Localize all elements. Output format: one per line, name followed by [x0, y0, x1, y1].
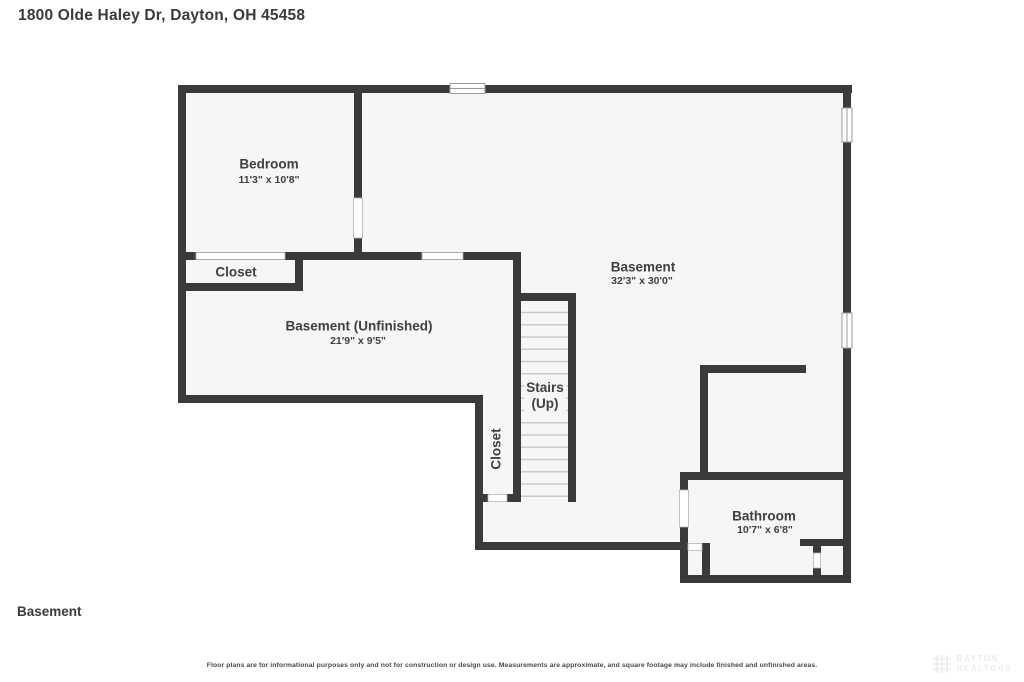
- door-stair-closet: [488, 495, 507, 502]
- stairs-label-line2: (Up): [526, 396, 564, 412]
- wall-unfinished-bottom: [178, 395, 483, 403]
- door-bedroom: [354, 198, 363, 238]
- mls-watermark: DAYTON REALTORS: [931, 653, 1012, 675]
- watermark-text: DAYTON REALTORS: [957, 654, 1012, 674]
- basement-unfinished-dimensions: 21'9" x 9'5": [330, 335, 386, 347]
- realtor-logo-icon: [931, 653, 953, 675]
- wall-bedroom-closet-bottom: [178, 283, 303, 291]
- stair-closet-label: Closet: [489, 428, 504, 469]
- wall-nook-left: [700, 365, 708, 480]
- bathroom-dimensions: 10'7" x 6'8": [737, 524, 793, 536]
- wall-outer-top: [178, 85, 852, 93]
- floor-plan-page: 1800 Olde Haley Dr, Dayton, OH 45458: [0, 0, 1024, 682]
- bathroom-label: Bathroom: [732, 509, 796, 524]
- wall-stairs-top: [513, 293, 576, 301]
- wall-stair-closet-bottom-b: [507, 494, 521, 502]
- bedroom-label: Bedroom: [239, 157, 298, 172]
- basement-dimensions: 32'3" x 30'0": [611, 275, 673, 287]
- wall-bathroom-left: [680, 472, 688, 583]
- wall-stairs-right: [568, 293, 576, 502]
- wall-stair-closet-bottom-a: [475, 494, 488, 502]
- stairs-label: Stairs (Up): [524, 379, 566, 413]
- wall-shower-right: [702, 543, 710, 583]
- wall-corridor-bottom: [475, 542, 688, 550]
- wall-utility-left-lower: [813, 568, 821, 576]
- stairs-label-line1: Stairs: [526, 380, 564, 396]
- wall-utility-top: [800, 539, 851, 546]
- floor-name-label: Basement: [17, 604, 82, 619]
- watermark-line2: REALTORS: [957, 664, 1012, 674]
- door-shower: [688, 544, 702, 551]
- bedroom-dimensions: 11'3" x 10'8": [238, 174, 299, 186]
- floor-plan-drawing: [0, 0, 1024, 682]
- basement-unfinished-label: Basement (Unfinished): [285, 319, 432, 334]
- wall-stairs-left: [513, 252, 521, 502]
- bedroom-closet-label: Closet: [215, 265, 256, 280]
- wall-outer-left: [178, 85, 186, 403]
- basement-label: Basement: [611, 260, 676, 275]
- wall-closet-column-left: [475, 395, 483, 550]
- wall-utility-left-upper: [813, 546, 821, 553]
- watermark-line1: DAYTON: [957, 654, 1012, 664]
- door-unfinished-basement: [422, 253, 463, 260]
- wall-nook-top: [700, 365, 806, 373]
- door-bathroom: [680, 490, 689, 527]
- disclaimer-text: Floor plans are for informational purpos…: [0, 662, 1024, 669]
- door-bedroom-closet-slider: [196, 253, 285, 260]
- door-utility: [814, 553, 821, 568]
